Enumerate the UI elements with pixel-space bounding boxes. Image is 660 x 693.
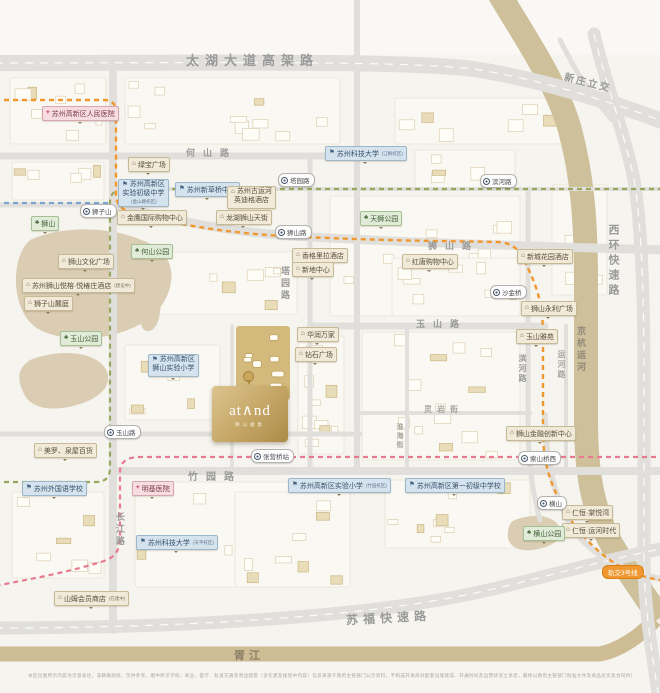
shop-icon: ⌂ <box>38 447 42 454</box>
poi-label: 何山公园 <box>141 247 169 257</box>
road-label-yunhe: 运河路 <box>556 350 567 380</box>
poi-indigo-hotel: ⌂苏州古运河英迪格酒店 <box>227 186 276 209</box>
road-label-taihu: 太湖大道高架路 <box>186 50 319 69</box>
poi-suffix: (金山路校区) <box>123 199 165 205</box>
poi-label: 绿宝广场 <box>138 160 166 170</box>
poi-zuanshi-plaza: ⌂钻石广场 <box>295 347 337 362</box>
tree-icon: ♣ <box>527 530 531 537</box>
poi-finance-innovation-center: ⌂狮山金融创新中心 <box>506 426 576 441</box>
station-label: 狮山路 <box>287 227 307 237</box>
poi-label: 明基医院 <box>142 484 170 494</box>
hospital-icon: + <box>136 485 140 492</box>
poi-foreign-language-school: ⚑苏州外国语学校 <box>22 481 87 496</box>
location-map: 太湖大道高架路 新庄立交 何山路 狮山路 玉山路 灵岩街 竹园路 苏福快速路 胥… <box>0 0 660 693</box>
station-shishanlu: 狮山路 <box>275 225 312 239</box>
poi-lvbao-plaza: ⌂绿宝广场 <box>128 157 170 172</box>
poi-label: 苏州高新区 <box>160 356 195 365</box>
road-label-xujiang: 胥江 <box>234 647 264 663</box>
poi-xindi-center: ⌂新地中心 <box>292 262 334 277</box>
poi-label: 狮山 <box>41 219 55 229</box>
road-label-shishan: 狮山路 <box>428 239 479 252</box>
poi-label-line2: 狮山实验小学 <box>152 365 195 374</box>
road-label-huaihai: 淮海街 <box>394 423 404 450</box>
poi-label: 苏州狮山悦榕·悦椿庄酒店 <box>32 281 111 291</box>
metro-icon <box>521 455 528 462</box>
station-label: 张营桥站 <box>263 451 289 461</box>
poi-label: 苏州高新区第一初级中学校 <box>417 481 501 491</box>
hospital-icon: + <box>46 110 50 117</box>
school-icon: ⚑ <box>179 186 185 193</box>
station-binhelu: 滨河路 <box>480 174 517 188</box>
poi-label: 仁恒·棠悦湾 <box>572 508 609 518</box>
poi-diyi-middle-school: ⚑苏州高新区第一初级中学校 <box>405 478 505 493</box>
poi-meiluo-quanwu: ⌂美罗、泉屋百货 <box>34 443 97 458</box>
school-icon: ⚑ <box>152 357 158 364</box>
poi-label: 苏州高新区 <box>130 181 165 190</box>
residence-icon: ⌂ <box>566 509 570 516</box>
poi-shiyan-middle-school: ⚑苏州高新区实验初级中学(金山路校区) <box>118 179 169 207</box>
poi-label: 苏州古运河 <box>237 188 272 197</box>
poi-keji-univ-jiangfeng: ⚑苏州科技大学(江枫校区) <box>325 146 407 161</box>
residence-icon: ⌂ <box>28 300 32 307</box>
poi-label: 狮山永利广场 <box>531 304 573 314</box>
map-disclaimer: 本区位图所示内容为示意表达，非精确测绘，仅供参考。图中所示学校、商业、医疗、轨道… <box>28 673 632 679</box>
road-label-zhuyuan: 竹园路 <box>188 468 242 483</box>
hotel-icon: ⌂ <box>296 252 300 259</box>
metro-line3-badge: 轨交3号线 <box>602 565 644 579</box>
poi-label: 横山公园 <box>533 529 561 539</box>
poi-label: 狮子山麓庭 <box>34 299 69 309</box>
shop-icon: ⌂ <box>121 214 125 221</box>
station-label: 滨河路 <box>492 176 512 186</box>
station-label: 塔园路 <box>290 175 310 185</box>
school-icon: ⚑ <box>329 150 335 157</box>
hotel-icon: ⌂ <box>26 282 30 289</box>
poi-label-line2: 英迪格酒店 <box>231 197 272 206</box>
project-logo-text: at∧nd <box>229 401 271 420</box>
metro-icon <box>254 453 261 460</box>
poi-banyan-tree-hotel: ⌂苏州狮山悦榕·悦椿庄酒店(建设中) <box>22 278 135 293</box>
metro-icon <box>83 208 90 215</box>
shop-icon: ⌂ <box>296 266 300 273</box>
poi-renheng-tangyuewan: ⌂仁恒·棠悦湾 <box>562 505 613 520</box>
poi-label-line2: 实验初级中学 <box>122 190 165 199</box>
poi-label: 狮山文化广场 <box>68 257 110 267</box>
shop-icon: ⌂ <box>406 258 410 265</box>
shop-icon: ⌂ <box>132 161 136 168</box>
poi-label: 美罗、泉屋百货 <box>44 446 93 456</box>
poi-suffix: (天平校区) <box>193 540 214 546</box>
poi-suffix: (在建中) <box>109 596 126 602</box>
road-label-lingyan: 灵岩街 <box>424 404 463 415</box>
poi-label: 仁恒·运河时代 <box>572 526 616 536</box>
school-icon: ⚑ <box>140 539 146 546</box>
poi-suffix: (江枫校区) <box>382 151 403 157</box>
poi-label: 红唐购物中心 <box>412 257 454 267</box>
station-label: 狮子山 <box>92 206 112 216</box>
poi-sams-club: ⌂山姆会员商店(在建中) <box>54 591 129 606</box>
station-yushanlu: 玉山路 <box>104 425 141 439</box>
road-label-tayuan: 塔园路 <box>279 266 292 302</box>
poi-tianshi-park: ♣天狮公园 <box>360 211 402 226</box>
poi-label: 华润万家 <box>307 330 335 340</box>
poi-label: 龙湖狮山天街 <box>226 213 268 223</box>
poi-label: 新地中心 <box>302 265 330 275</box>
road-label-changjiang: 长江路 <box>114 512 127 548</box>
tree-icon: ♣ <box>364 215 368 222</box>
poi-label: 金鹰国际购物中心 <box>127 213 183 223</box>
station-label: 沙金桥 <box>502 287 522 297</box>
poi-hongtang-mall: ⌂红唐购物中心 <box>402 254 458 269</box>
poi-mingji-hospital: +明基医院 <box>132 481 174 496</box>
school-icon: ⚑ <box>292 482 298 489</box>
metro-icon <box>540 500 547 507</box>
station-label: 索山桥西 <box>530 453 556 463</box>
poi-yushan-park: ♣玉山公园 <box>60 331 102 346</box>
station-label: 玉山路 <box>116 427 136 437</box>
poi-suffix: (建设中) <box>114 283 131 289</box>
poi-jinying-mall: ⌂金鹰国际购物中心 <box>117 210 187 225</box>
road-label-heshan: 何山路 <box>186 146 237 159</box>
poi-xincheng-garden-hotel: ⌂新城花园酒店 <box>517 249 573 264</box>
shop-icon: ⌂ <box>510 430 514 437</box>
road-label-grand-canal: 京杭运河 <box>575 326 588 374</box>
hotel-icon: ⌂ <box>521 253 525 260</box>
poi-suffix: (竹园校区) <box>366 483 387 489</box>
road-label-binhe: 滨河路 <box>517 354 528 384</box>
poi-yongli-plaza: ⌂狮山永利广场 <box>521 301 577 316</box>
school-icon: ⚑ <box>122 182 128 189</box>
project-logo-subtitle: 狮山雅集 <box>235 422 265 428</box>
project-logo: at∧nd 狮山雅集 <box>212 386 288 442</box>
poi-label: 天狮公园 <box>370 214 398 224</box>
poi-renheng-yunheshidai: ⌂仁恒·运河时代 <box>562 523 620 538</box>
poi-keji-univ-tianping: ⚑苏州科技大学(天平校区) <box>136 535 218 550</box>
project-pin-icon <box>243 371 254 382</box>
poi-label: 苏州外国语学校 <box>34 484 83 494</box>
poi-shiyan-primary-school: ⚑苏州高新区实验小学(竹园校区) <box>288 478 391 493</box>
shop-icon: ⌂ <box>525 305 529 312</box>
tree-icon: ♣ <box>135 248 139 255</box>
poi-label: 香格里拉酒店 <box>302 251 344 261</box>
poi-huarun-wanjia: ⌂华润万家 <box>297 327 339 342</box>
metro-icon <box>278 229 285 236</box>
shop-icon: ⌂ <box>220 214 224 221</box>
shop-icon: ⌂ <box>299 351 303 358</box>
poi-heshan-park: ♣何山公园 <box>131 244 173 259</box>
poi-renmin-hospital: +苏州高新区人民医院 <box>42 106 119 121</box>
tree-icon: ♣ <box>64 335 68 342</box>
poi-label: 狮山金融创新中心 <box>516 429 572 439</box>
metro-icon <box>483 178 490 185</box>
poi-label: 玉山雅苑 <box>526 332 554 342</box>
road-label-xihuan: 西环快速路 <box>605 224 621 299</box>
metro-icon <box>493 289 500 296</box>
poi-yushan-yayuan: ⌂玉山雅苑 <box>516 329 558 344</box>
poi-label: 新城花园酒店 <box>527 252 569 262</box>
poi-shizishan-luting: ⌂狮子山麓庭 <box>24 296 73 311</box>
shop-icon: ⌂ <box>301 331 305 338</box>
poi-label: 苏州高新区实验小学 <box>300 481 363 491</box>
shop-icon: ⌂ <box>58 595 62 602</box>
station-tayuanlu: 塔园路 <box>278 173 315 187</box>
residence-icon: ⌂ <box>520 333 524 340</box>
poi-label: 玉山公园 <box>70 334 98 344</box>
poi-longhu-tianjie: ⌂龙湖狮山天街 <box>216 210 272 225</box>
station-shizishan: 狮子山 <box>80 204 117 218</box>
poi-shishan-culture-plaza: ⌂狮山文化广场 <box>58 254 114 269</box>
poi-shishan: ♣狮山 <box>31 216 59 231</box>
poi-hengshan-park: ♣横山公园 <box>523 526 565 541</box>
school-icon: ⚑ <box>26 485 32 492</box>
poi-shishan-primary-school: ⚑苏州高新区狮山实验小学 <box>148 354 199 377</box>
poi-shangrila-hotel: ⌂香格里拉酒店 <box>292 248 348 263</box>
poi-label: 苏州科技大学 <box>148 538 190 548</box>
road-label-yushan: 玉山路 <box>416 317 467 330</box>
residence-icon: ⌂ <box>566 527 570 534</box>
station-zhangyingqiao: 张营桥站 <box>251 449 294 463</box>
station-hengshan: 横山 <box>537 496 567 510</box>
school-icon: ⚑ <box>409 482 415 489</box>
tree-icon: ♣ <box>35 220 39 227</box>
poi-label: 山姆会员商店 <box>64 594 106 604</box>
shop-icon: ⌂ <box>62 258 66 265</box>
station-label: 横山 <box>549 498 562 508</box>
poi-label: 钻石广场 <box>305 350 333 360</box>
station-shajinqiao: 沙金桥 <box>490 285 527 299</box>
metro-icon <box>281 177 288 184</box>
metro-icon <box>107 429 114 436</box>
hotel-icon: ⌂ <box>231 189 235 196</box>
poi-label: 苏州科技大学 <box>337 149 379 159</box>
station-suoshanqiaoxi: 索山桥西 <box>518 451 561 465</box>
poi-label: 苏州高新区人民医院 <box>52 109 115 119</box>
